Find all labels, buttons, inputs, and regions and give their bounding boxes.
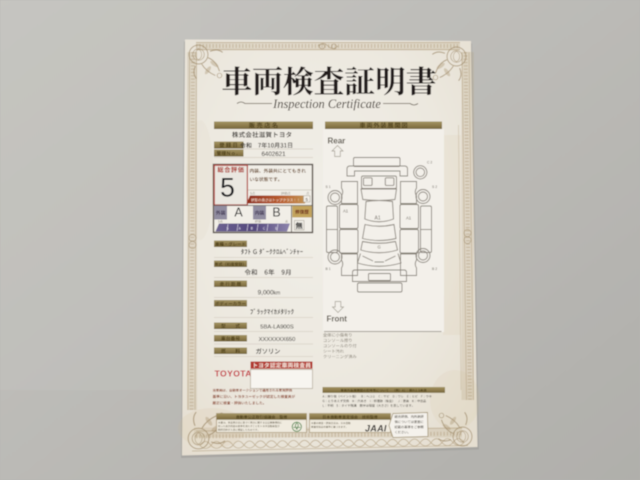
svg-text:Inspection Certificate: Inspection Certificate xyxy=(272,97,381,111)
svg-text:JAAI: JAAI xyxy=(365,424,387,434)
svg-text:A1: A1 xyxy=(375,216,381,222)
svg-text:Front: Front xyxy=(327,315,348,324)
svg-text:S 2: S 2 xyxy=(432,185,437,189)
svg-text:A1: A1 xyxy=(343,209,349,214)
svg-text:A1: A1 xyxy=(406,216,412,221)
svg-text:C 2: C 2 xyxy=(427,161,432,165)
svg-text:XXXXXXX650: XXXXXXX650 xyxy=(259,337,296,343)
svg-text:TOYOTA: TOYOTA xyxy=(215,369,252,379)
svg-text:9,000km: 9,000km xyxy=(258,290,281,297)
svg-text:B 1: B 1 xyxy=(326,267,331,271)
svg-text:5: 5 xyxy=(220,173,235,203)
svg-text:Rear: Rear xyxy=(328,137,346,146)
svg-text:B 2: B 2 xyxy=(432,267,437,271)
svg-text:6402621: 6402621 xyxy=(261,151,286,158)
svg-text:5BA-LA900S: 5BA-LA900S xyxy=(260,325,294,331)
svg-text:A: A xyxy=(234,206,243,220)
svg-text:G: G xyxy=(378,245,381,250)
svg-text:B: B xyxy=(272,206,280,220)
svg-text:S 1: S 1 xyxy=(326,185,331,189)
